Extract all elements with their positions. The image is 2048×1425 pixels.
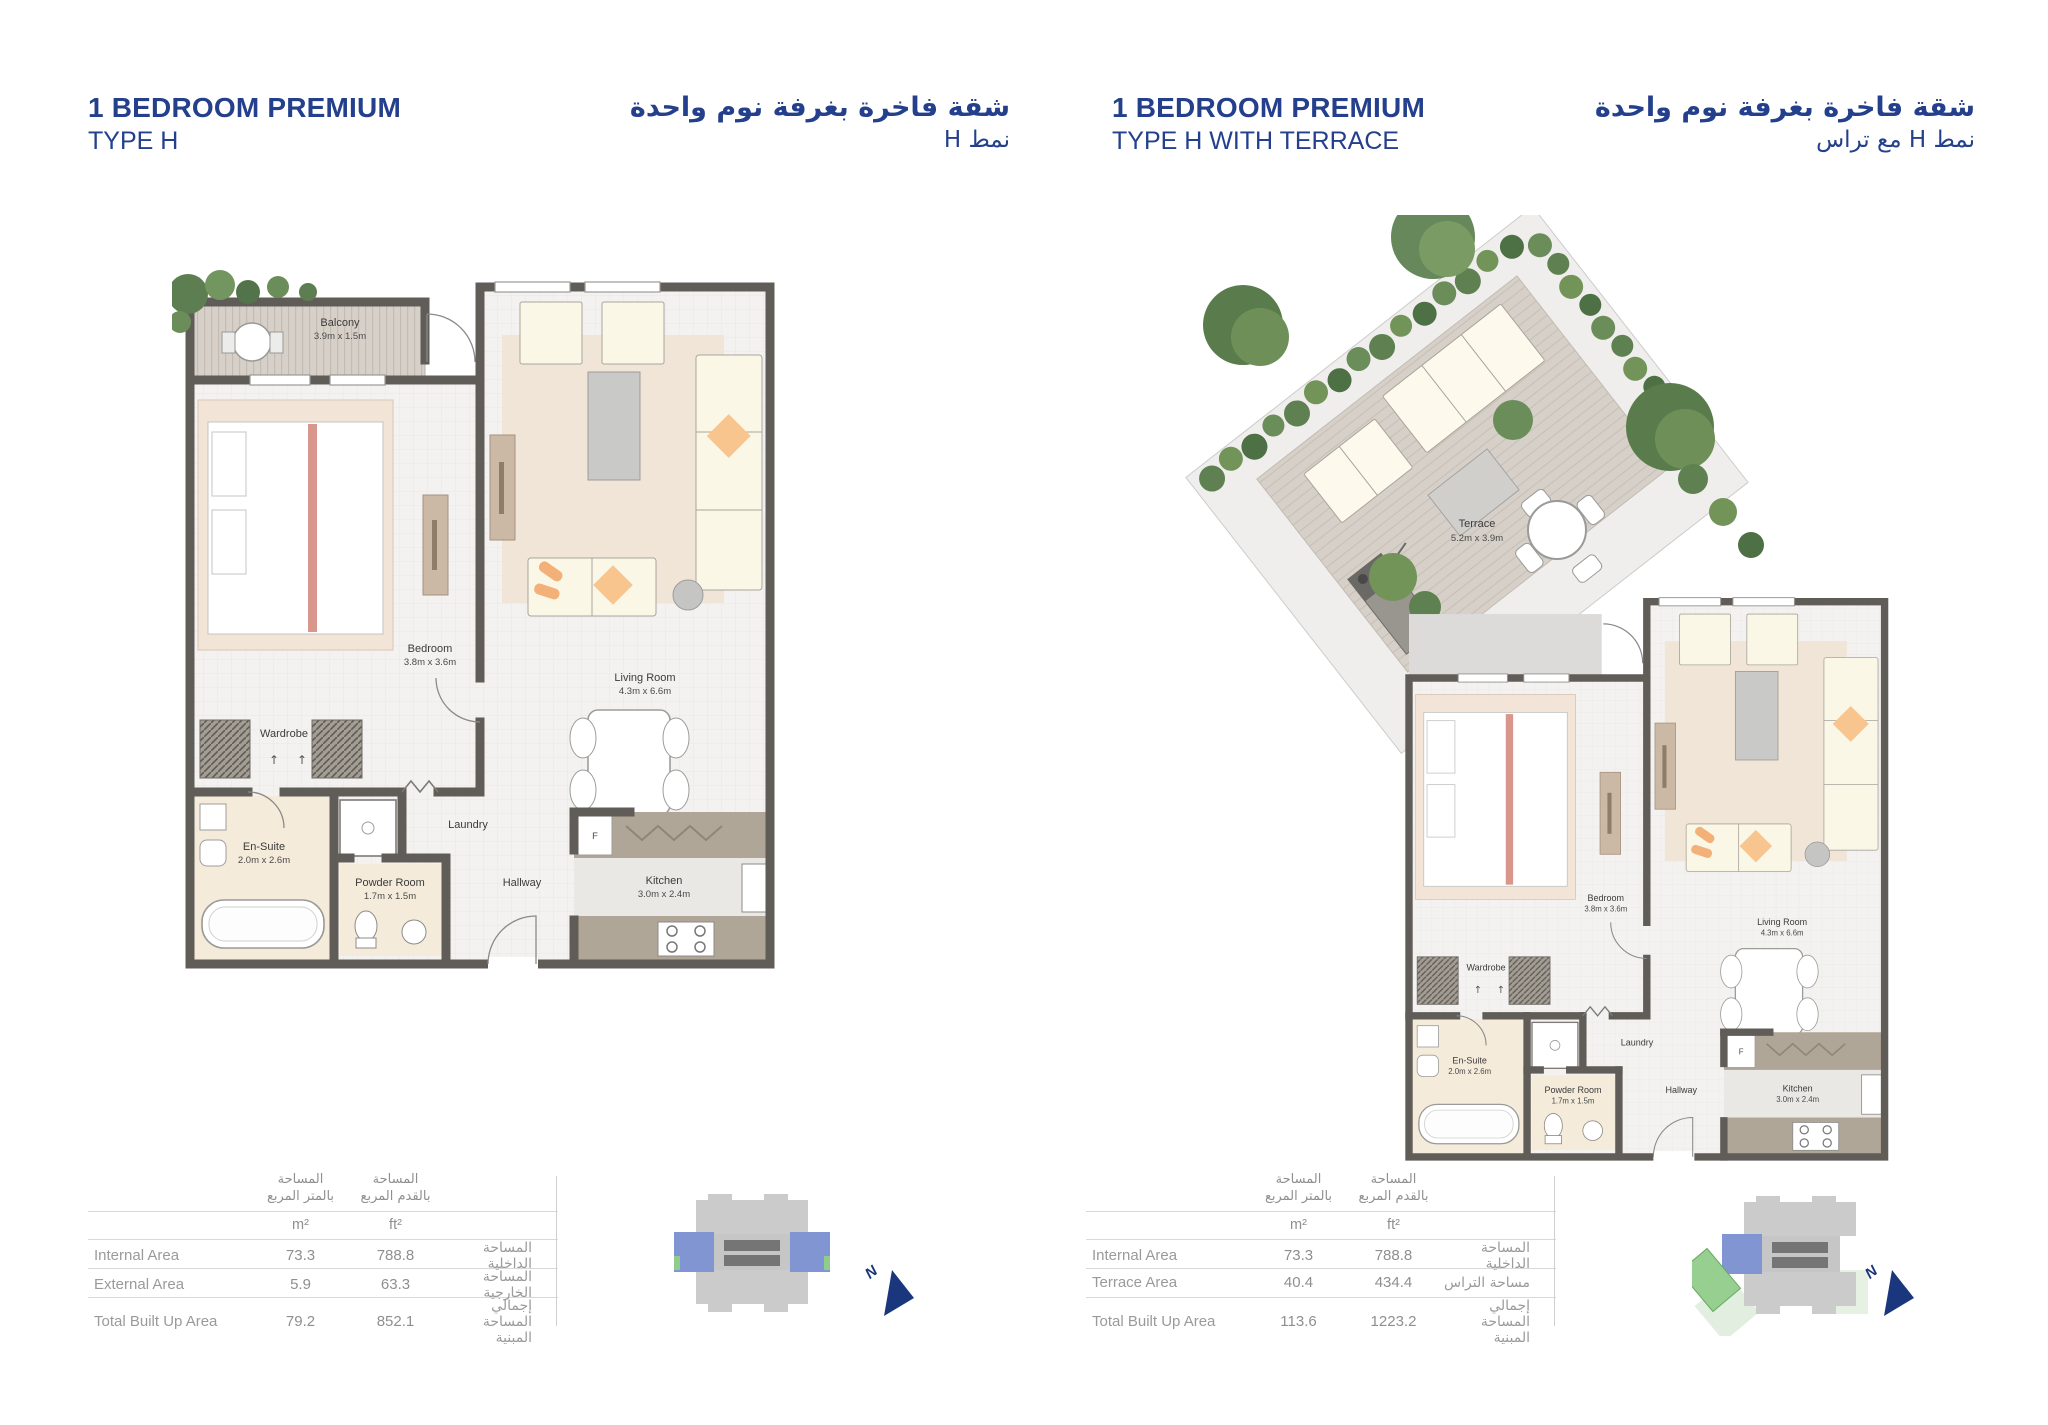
row-label-ar: المساحة الداخلية [1441, 1240, 1556, 1272]
floor-plan-type-h: Balcony 3.9m x 1.5m [172, 258, 792, 973]
row-m2: 5.9 [253, 1276, 348, 1293]
header-ft2-ar: المساحةبالقدم المربع [348, 1172, 443, 1206]
right-title-line1: 1 BEDROOM PREMIUM [1112, 92, 1425, 124]
balcony-table [233, 323, 271, 361]
right-title-ar-line1: شقة فاخرة بغرفة نوم واحدة [1595, 92, 1975, 123]
row-label-en: Terrace Area [1086, 1274, 1251, 1291]
key-plan-type-h [672, 1188, 842, 1320]
row-label-en: Total Built Up Area [88, 1313, 253, 1330]
row-label-en: Internal Area [88, 1247, 253, 1264]
balcony-label: Balcony [320, 317, 360, 329]
row-ft2: 852.1 [348, 1313, 443, 1330]
table-row: External Area 5.9 63.3 المساحة الخارجية [88, 1269, 558, 1298]
right-title-ar-line2: نمط H مع تراس [1595, 127, 1975, 153]
header-m2-ar: المساحةبالمتر المربع [1251, 1172, 1346, 1206]
left-title-ar-line1: شقة فاخرة بغرفة نوم واحدة [630, 92, 1010, 123]
unit-ft2: ft² [348, 1217, 443, 1233]
row-label-ar: مساحة التراس [1441, 1275, 1556, 1291]
area-table-type-h: المساحةبالمتر المربع المساحةبالقدم المرب… [88, 1172, 558, 1326]
north-label: N [862, 1262, 882, 1283]
header-ft2-ar: المساحةبالقدم المربع [1346, 1172, 1441, 1206]
row-ft2: 434.4 [1346, 1274, 1441, 1291]
terrace-round-table [1528, 501, 1586, 559]
key-plan-type-h-terrace [1692, 1186, 1882, 1336]
terrace-label: Terrace [1459, 518, 1496, 530]
table-units-row: m² ft² [88, 1212, 558, 1240]
row-m2: 113.6 [1251, 1313, 1346, 1330]
right-title-en: 1 BEDROOM PREMIUM TYPE H WITH TERRACE [1112, 92, 1425, 156]
table-divider [1554, 1176, 1555, 1326]
row-ft2: 1223.2 [1346, 1313, 1441, 1330]
table-row: Total Built Up Area 79.2 852.1 إجمالي ال… [88, 1298, 558, 1326]
row-m2: 73.3 [253, 1247, 348, 1264]
table-row: Internal Area 73.3 788.8 المساحة الداخلي… [1086, 1240, 1556, 1269]
table-row: Terrace Area 40.4 434.4 مساحة التراس [1086, 1269, 1556, 1298]
unit-m2: m² [1251, 1217, 1346, 1233]
unit-m2: m² [253, 1217, 348, 1233]
north-arrow-icon [1884, 1270, 1914, 1316]
row-label-ar: المساحة الخارجية [443, 1269, 558, 1301]
floor-plan-type-h-terrace: Terrace 5.2m x 3.9m [1165, 215, 1975, 1165]
table-header: المساحةبالمتر المربع المساحةبالقدم المرب… [88, 1172, 558, 1212]
table-row: Total Built Up Area 113.6 1223.2 إجمالي … [1086, 1298, 1556, 1326]
north-label: N [1862, 1262, 1882, 1283]
left-title-en: 1 BEDROOM PREMIUM TYPE H [88, 92, 401, 156]
apartment-core [190, 282, 770, 971]
row-label-en: External Area [88, 1276, 253, 1293]
terrace-dim: 5.2m x 3.9m [1451, 533, 1503, 544]
header-m2-ar: المساحةبالمتر المربع [253, 1172, 348, 1206]
area-table-type-h-terrace: المساحةبالمتر المربع المساحةبالقدم المرب… [1086, 1172, 1556, 1326]
left-title-line1: 1 BEDROOM PREMIUM [88, 92, 401, 124]
table-divider [556, 1176, 557, 1326]
apartment-core-terrace [1409, 598, 1885, 1163]
row-label-en: Internal Area [1086, 1247, 1251, 1264]
row-label-en: Total Built Up Area [1086, 1313, 1251, 1330]
right-title-ar: شقة فاخرة بغرفة نوم واحدة نمط H مع تراس [1595, 92, 1975, 153]
north-arrow: N [1858, 1258, 1928, 1328]
row-label-ar: المساحة الداخلية [443, 1240, 558, 1272]
balcony-dim: 3.9m x 1.5m [314, 331, 366, 342]
balcony-marker [674, 1256, 680, 1270]
table-row: Internal Area 73.3 788.8 المساحة الداخلي… [88, 1240, 558, 1269]
table-units-row: m² ft² [1086, 1212, 1556, 1240]
row-m2: 40.4 [1251, 1274, 1346, 1291]
row-label-ar: إجمالي المساحة المبنية [1441, 1298, 1556, 1346]
unit-ft2: ft² [1346, 1217, 1441, 1233]
balcony-marker [824, 1256, 830, 1270]
north-arrow-icon [884, 1270, 914, 1316]
balcony-area: Balcony 3.9m x 1.5m [172, 270, 475, 380]
row-m2: 73.3 [1251, 1247, 1346, 1264]
row-ft2: 788.8 [1346, 1247, 1441, 1264]
left-title-ar-line2: نمط H [630, 127, 1010, 153]
left-title-ar: شقة فاخرة بغرفة نوم واحدة نمط H [630, 92, 1010, 153]
highlighted-unit [1722, 1234, 1762, 1274]
row-label-ar: إجمالي المساحة المبنية [443, 1298, 558, 1346]
north-arrow: N [858, 1258, 928, 1328]
left-title-line2: TYPE H [88, 127, 401, 156]
table-header: المساحةبالمتر المربع المساحةبالقدم المرب… [1086, 1172, 1556, 1212]
row-m2: 79.2 [253, 1313, 348, 1330]
right-title-line2: TYPE H WITH TERRACE [1112, 127, 1425, 156]
row-ft2: 63.3 [348, 1276, 443, 1293]
row-ft2: 788.8 [348, 1247, 443, 1264]
